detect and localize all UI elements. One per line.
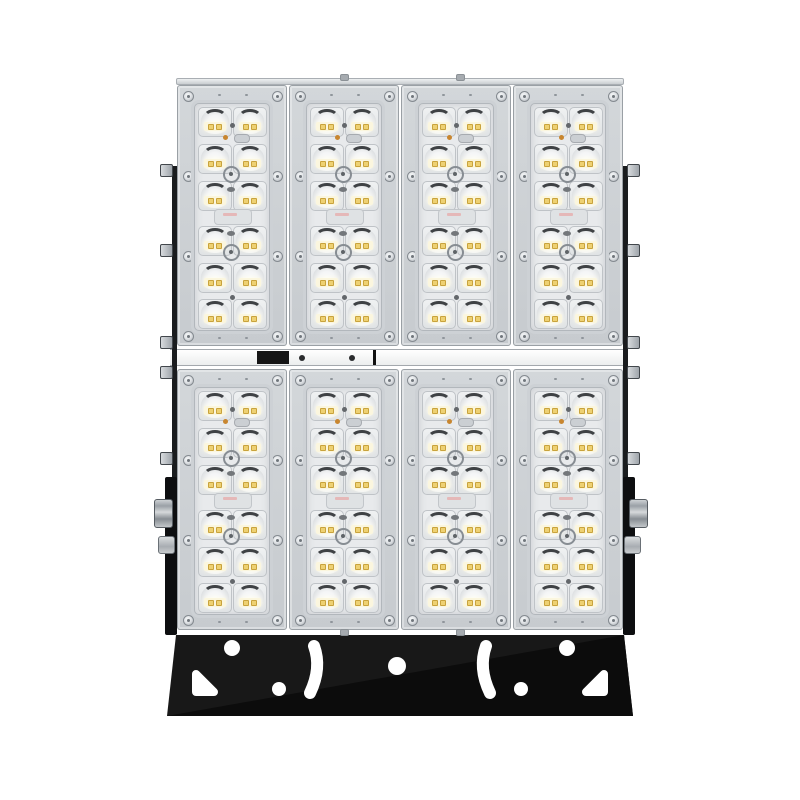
led-die [544, 527, 550, 533]
led-die [432, 408, 438, 414]
screw-slot [612, 175, 615, 178]
led-die [467, 527, 473, 533]
led-lens [422, 263, 456, 293]
screw-boss [559, 528, 576, 545]
led-chip [575, 241, 597, 250]
led-die [432, 198, 438, 204]
screw-slot [276, 459, 279, 462]
led-die [544, 316, 550, 322]
led-chip [316, 598, 338, 607]
led-lens [198, 299, 232, 329]
mounting-tab [160, 164, 173, 177]
led-die [328, 161, 334, 167]
led-chip [204, 562, 226, 571]
screw-icon [519, 251, 530, 262]
led-chip [463, 406, 485, 415]
led-lens [198, 263, 232, 293]
connector-cover [234, 134, 250, 143]
led-chip [428, 278, 450, 287]
led-die [208, 445, 214, 451]
led-chip [540, 278, 562, 287]
led-die [320, 280, 326, 286]
mold-mark [245, 94, 248, 96]
led-die [552, 198, 558, 204]
led-die [579, 161, 585, 167]
screw-slot [411, 255, 414, 258]
led-die [251, 316, 257, 322]
pad-marking [335, 213, 349, 216]
led-lens [534, 583, 568, 613]
led-die [216, 600, 222, 606]
led-lens [457, 181, 491, 211]
led-chip [428, 122, 450, 131]
led-chip [316, 314, 338, 323]
led-die [587, 408, 593, 414]
screw-icon [272, 91, 283, 102]
mold-mark [581, 94, 584, 96]
led-lens [457, 107, 491, 137]
screw-slot [388, 539, 391, 542]
led-lens [198, 547, 232, 577]
thermal-dot [447, 419, 452, 424]
connector-cover [570, 134, 586, 143]
led-die [552, 124, 558, 130]
led-lens [310, 547, 344, 577]
led-chip [239, 196, 261, 205]
led-die [440, 527, 446, 533]
led-die [432, 564, 438, 570]
led-chip [463, 278, 485, 287]
led-die [216, 124, 222, 130]
led-lens [233, 465, 267, 495]
led-lens [569, 465, 603, 495]
screw-slot [612, 255, 615, 258]
led-die [579, 482, 585, 488]
led-die [467, 280, 473, 286]
pcb-oval [451, 187, 459, 192]
led-die [363, 600, 369, 606]
screw-icon [407, 331, 418, 342]
led-die [579, 280, 585, 286]
led-die [320, 482, 326, 488]
led-die [440, 408, 446, 414]
pcb-oval [451, 231, 459, 236]
led-die [475, 124, 481, 130]
mounting-tab [627, 164, 640, 177]
led-chip [540, 443, 562, 452]
screw-icon [295, 615, 306, 626]
led-die [208, 124, 214, 130]
led-die [363, 280, 369, 286]
screw-slot [299, 255, 302, 258]
led-die [544, 445, 550, 451]
led-chip [351, 241, 373, 250]
mounting-tab [627, 452, 640, 465]
led-die [579, 527, 585, 533]
led-die [328, 280, 334, 286]
pcb-oval [563, 231, 571, 236]
pcb-dot [230, 407, 235, 412]
led-die [544, 408, 550, 414]
led-chip [351, 278, 373, 287]
screw-slot [523, 379, 526, 382]
screw-slot [411, 459, 414, 462]
led-chip [463, 525, 485, 534]
led-lens [569, 263, 603, 293]
pcb-dot [342, 407, 347, 412]
screw-icon [183, 375, 194, 386]
screw-icon [183, 91, 194, 102]
screw-icon [384, 615, 395, 626]
led-module [177, 85, 287, 346]
pcb-oval [227, 515, 235, 520]
led-die [355, 564, 361, 570]
screw-icon [295, 535, 306, 546]
screw-slot [299, 175, 302, 178]
led-module [401, 369, 511, 630]
screw-icon [608, 535, 619, 546]
led-chip [575, 314, 597, 323]
led-chip [540, 122, 562, 131]
led-die [587, 482, 593, 488]
led-lens [198, 465, 232, 495]
led-lens [569, 391, 603, 421]
pcb-dot [342, 579, 347, 584]
led-die [328, 124, 334, 130]
led-die [552, 482, 558, 488]
led-die [243, 482, 249, 488]
led-chip [540, 196, 562, 205]
screw-slot [276, 539, 279, 542]
led-die [355, 280, 361, 286]
led-die [467, 243, 473, 249]
connector-cover [234, 418, 250, 427]
screw-boss-center [453, 456, 457, 460]
screw-icon [183, 455, 194, 466]
led-die [467, 408, 473, 414]
mounting-tab [160, 366, 173, 379]
screw-slot [523, 175, 526, 178]
led-die [251, 600, 257, 606]
screw-icon [272, 375, 283, 386]
lens-plate [418, 387, 494, 615]
pcb-dot [230, 579, 235, 584]
screw-slot [299, 539, 302, 542]
led-die [363, 198, 369, 204]
led-chip [463, 480, 485, 489]
mold-mark [330, 621, 333, 623]
screw-boss-center [229, 534, 233, 538]
screw-slot [523, 459, 526, 462]
led-lens [345, 391, 379, 421]
screw-slot [388, 255, 391, 258]
led-die [355, 161, 361, 167]
mounting-hole [272, 682, 286, 696]
seam-line [373, 350, 376, 365]
screw-slot [500, 539, 503, 542]
led-chip [351, 562, 373, 571]
led-chip [239, 480, 261, 489]
led-lens [422, 299, 456, 329]
screw-icon [272, 535, 283, 546]
led-die [355, 527, 361, 533]
led-die [216, 564, 222, 570]
led-die [355, 198, 361, 204]
screw-slot [411, 379, 414, 382]
screw-boss-center [229, 250, 233, 254]
led-die [328, 408, 334, 414]
lens-plate [306, 103, 382, 331]
led-die [440, 445, 446, 451]
led-lens [233, 391, 267, 421]
led-die [475, 445, 481, 451]
led-chip [575, 159, 597, 168]
screw-slot [187, 255, 190, 258]
aiming-slot [483, 646, 490, 693]
led-die [216, 198, 222, 204]
mold-mark [218, 621, 221, 623]
led-die [475, 527, 481, 533]
led-chip [428, 159, 450, 168]
led-chip [351, 196, 373, 205]
led-chip [351, 598, 373, 607]
mold-mark [469, 378, 472, 380]
screw-icon [384, 455, 395, 466]
led-die [544, 482, 550, 488]
screw-boss [223, 528, 240, 545]
screw-slot [523, 335, 526, 338]
adjust-bolt [158, 536, 175, 554]
led-die [320, 161, 326, 167]
led-lens [457, 299, 491, 329]
screw-slot [523, 539, 526, 542]
screw-slot [500, 335, 503, 338]
led-chip [540, 562, 562, 571]
screw-slot [276, 255, 279, 258]
screw-boss-center [341, 172, 345, 176]
pcb-oval [451, 471, 459, 476]
led-lens [198, 583, 232, 613]
led-die [208, 482, 214, 488]
screw-icon [496, 331, 507, 342]
led-chip [463, 562, 485, 571]
led-die [216, 527, 222, 533]
led-die [440, 198, 446, 204]
led-die [355, 408, 361, 414]
screw-icon [608, 615, 619, 626]
led-module [177, 369, 287, 630]
screw-slot [612, 539, 615, 542]
led-die [216, 482, 222, 488]
led-die [243, 445, 249, 451]
mold-mark [330, 337, 333, 339]
connector-cover [346, 418, 362, 427]
screw-icon [384, 331, 395, 342]
center-pad [438, 209, 476, 225]
led-chip [204, 122, 226, 131]
led-die [440, 600, 446, 606]
led-die [243, 408, 249, 414]
center-pad [214, 209, 252, 225]
led-die [579, 564, 585, 570]
screw-boss-center [453, 250, 457, 254]
screw-boss [447, 528, 464, 545]
screw-boss-center [341, 250, 345, 254]
led-die [208, 564, 214, 570]
screw-boss-center [341, 456, 345, 460]
led-lens [310, 465, 344, 495]
screw-icon [295, 251, 306, 262]
led-die [587, 198, 593, 204]
led-die [328, 527, 334, 533]
led-die [440, 161, 446, 167]
led-die [432, 445, 438, 451]
led-die [432, 124, 438, 130]
mold-mark [357, 378, 360, 380]
led-chip [351, 159, 373, 168]
led-chip [428, 443, 450, 452]
screw-icon [519, 535, 530, 546]
screw-icon [384, 375, 395, 386]
pcb-dot [342, 295, 347, 300]
screw-icon [608, 331, 619, 342]
mounting-tab [160, 336, 173, 349]
center-pad [214, 493, 252, 509]
mounting-tab [627, 366, 640, 379]
led-chip [351, 525, 373, 534]
thermal-dot [223, 419, 228, 424]
screw-icon [183, 615, 194, 626]
screw-icon [295, 171, 306, 182]
led-chip [463, 314, 485, 323]
screw-slot [612, 335, 615, 338]
led-lens [345, 181, 379, 211]
led-die [320, 408, 326, 414]
led-chip [239, 241, 261, 250]
led-chip [540, 159, 562, 168]
hex-bolt [629, 499, 648, 528]
screw-icon [183, 171, 194, 182]
led-lens [569, 583, 603, 613]
led-die [216, 280, 222, 286]
led-chip [463, 598, 485, 607]
lens-plate [306, 387, 382, 615]
mold-mark [357, 621, 360, 623]
screw-slot [500, 619, 503, 622]
led-chip [463, 241, 485, 250]
led-die [328, 482, 334, 488]
led-chip [351, 406, 373, 415]
screw-icon [496, 171, 507, 182]
screw-icon [295, 91, 306, 102]
side-rail [623, 166, 628, 634]
center-pad [326, 209, 364, 225]
screw-icon [519, 455, 530, 466]
led-die [328, 564, 334, 570]
led-die [208, 316, 214, 322]
led-die [552, 408, 558, 414]
led-die [587, 161, 593, 167]
center-pad [550, 209, 588, 225]
led-chip [428, 480, 450, 489]
led-die [440, 564, 446, 570]
mold-mark [218, 378, 221, 380]
mold-mark [218, 94, 221, 96]
led-chip [239, 278, 261, 287]
screw-icon [272, 171, 283, 182]
screw-slot [523, 255, 526, 258]
led-chip [316, 562, 338, 571]
led-die [579, 408, 585, 414]
led-lens [457, 263, 491, 293]
mold-mark [330, 94, 333, 96]
led-die [363, 445, 369, 451]
led-lens [422, 107, 456, 137]
mounting-tab [627, 336, 640, 349]
led-lens [534, 465, 568, 495]
led-die [208, 198, 214, 204]
led-die [579, 600, 585, 606]
led-die [320, 243, 326, 249]
pcb-oval [339, 231, 347, 236]
screw-boss [447, 166, 464, 183]
screw-icon [407, 615, 418, 626]
screw-slot [388, 175, 391, 178]
screw-icon [384, 171, 395, 182]
screw-slot [299, 379, 302, 382]
pcb-oval [339, 187, 347, 192]
led-die [587, 243, 593, 249]
module-row-bottom [177, 369, 623, 630]
led-lens [422, 181, 456, 211]
led-die [208, 600, 214, 606]
connector-cover [458, 418, 474, 427]
led-die [467, 198, 473, 204]
connector-cover [458, 134, 474, 143]
led-die [467, 600, 473, 606]
led-chip [428, 314, 450, 323]
junction-block [257, 351, 289, 364]
screw-icon [608, 455, 619, 466]
led-die [251, 198, 257, 204]
led-chip [239, 598, 261, 607]
led-die [552, 316, 558, 322]
led-chip [428, 598, 450, 607]
led-die [475, 198, 481, 204]
pcb-dot [454, 295, 459, 300]
screw-slot [388, 379, 391, 382]
screw-slot [411, 335, 414, 338]
led-chip [316, 196, 338, 205]
mold-mark [245, 621, 248, 623]
screw-slot [187, 539, 190, 542]
thermal-dot [335, 419, 340, 424]
led-die [475, 243, 481, 249]
screw-slot [411, 619, 414, 622]
mold-mark [581, 337, 584, 339]
screw-slot [388, 95, 391, 98]
led-lens [233, 547, 267, 577]
lens-plate [530, 103, 606, 331]
led-die [552, 161, 558, 167]
led-die [251, 445, 257, 451]
screw-boss [447, 244, 464, 261]
led-die [579, 243, 585, 249]
led-die [579, 445, 585, 451]
pad-marking [223, 213, 237, 216]
pcb-oval [227, 187, 235, 192]
led-lens [345, 583, 379, 613]
